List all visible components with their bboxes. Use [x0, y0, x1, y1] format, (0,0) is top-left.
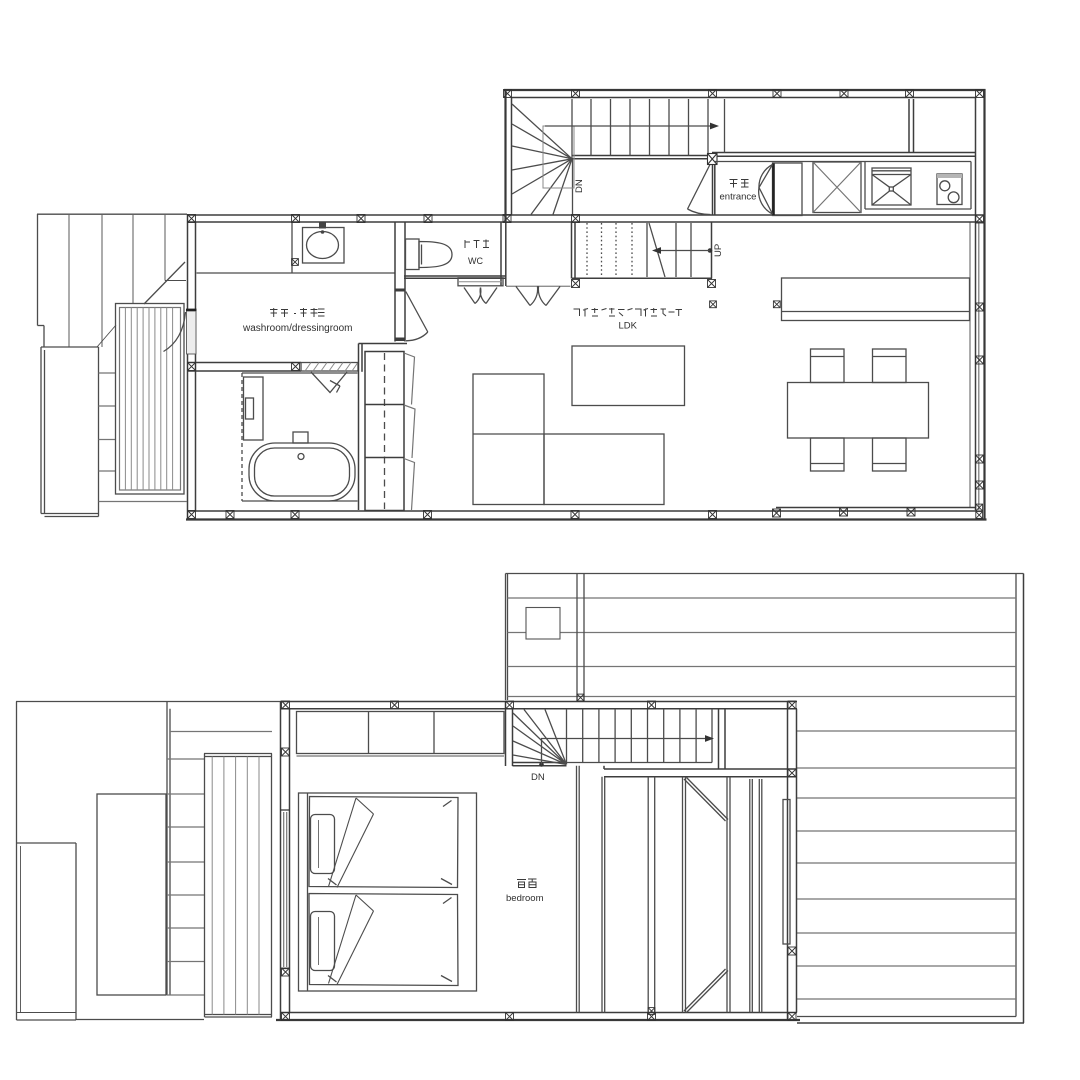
svg-text:entrance: entrance	[720, 192, 757, 203]
svg-text:LDK: LDK	[619, 321, 638, 332]
svg-text:DN: DN	[574, 179, 585, 193]
svg-text:washroom/dressingroom: washroom/dressingroom	[242, 323, 353, 334]
svg-text:bedroom: bedroom	[506, 893, 544, 904]
svg-text:DN: DN	[531, 772, 545, 783]
svg-text:UP: UP	[713, 244, 724, 257]
svg-text:WC: WC	[468, 256, 483, 266]
